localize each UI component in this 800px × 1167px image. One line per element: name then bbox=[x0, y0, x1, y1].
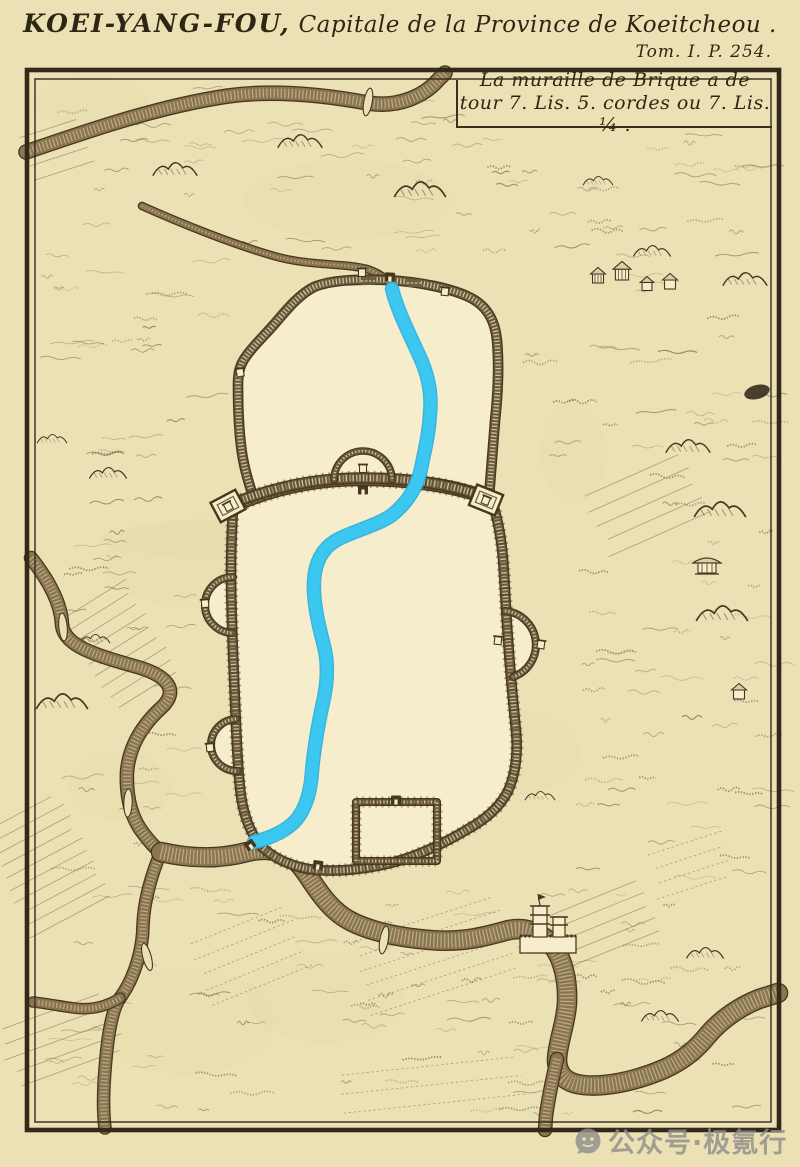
gate-icon bbox=[385, 272, 395, 282]
gate-icon bbox=[358, 486, 368, 495]
wall-tower-icon bbox=[205, 743, 216, 752]
map-canvas bbox=[0, 0, 800, 1167]
wall-tower-icon bbox=[493, 636, 504, 645]
cartouche-line-1: La muraille de Brique a de bbox=[458, 69, 772, 91]
watermark-text: 公众号·极氪行 bbox=[608, 1121, 787, 1160]
brick-wall-patch bbox=[361, 277, 375, 285]
antique-map-page: KOEI-YANG-FOU, Capitale de la Province d… bbox=[0, 0, 800, 1167]
legend-cartouche: La muraille de Brique a de tour 7. Lis. … bbox=[456, 80, 772, 128]
map-title-subtitle: Capitale de la Province de Koeitcheou . bbox=[291, 12, 777, 38]
brick-wall-patch bbox=[407, 279, 421, 287]
wall-tower-icon bbox=[200, 599, 211, 608]
cartouche-line-2: tour 7. Lis. 5. cordes ou 7. Lis. ¼ . bbox=[458, 92, 772, 137]
map-title-city: KOEI-YANG-FOU, bbox=[23, 9, 291, 38]
volume-page-reference: Tom. I. P. 254. bbox=[636, 42, 772, 62]
city-interiors bbox=[205, 280, 536, 871]
watermark: 公众号·极氪行 bbox=[575, 1121, 787, 1160]
map-title: KOEI-YANG-FOU, Capitale de la Province d… bbox=[0, 9, 800, 38]
gate-icon bbox=[312, 860, 323, 870]
wall-tower-icon bbox=[357, 269, 367, 277]
wall-tower-icon bbox=[358, 465, 368, 473]
gate-icon bbox=[391, 796, 401, 805]
wechat-logo-icon bbox=[575, 1128, 601, 1154]
wall-tower-icon bbox=[440, 287, 451, 296]
